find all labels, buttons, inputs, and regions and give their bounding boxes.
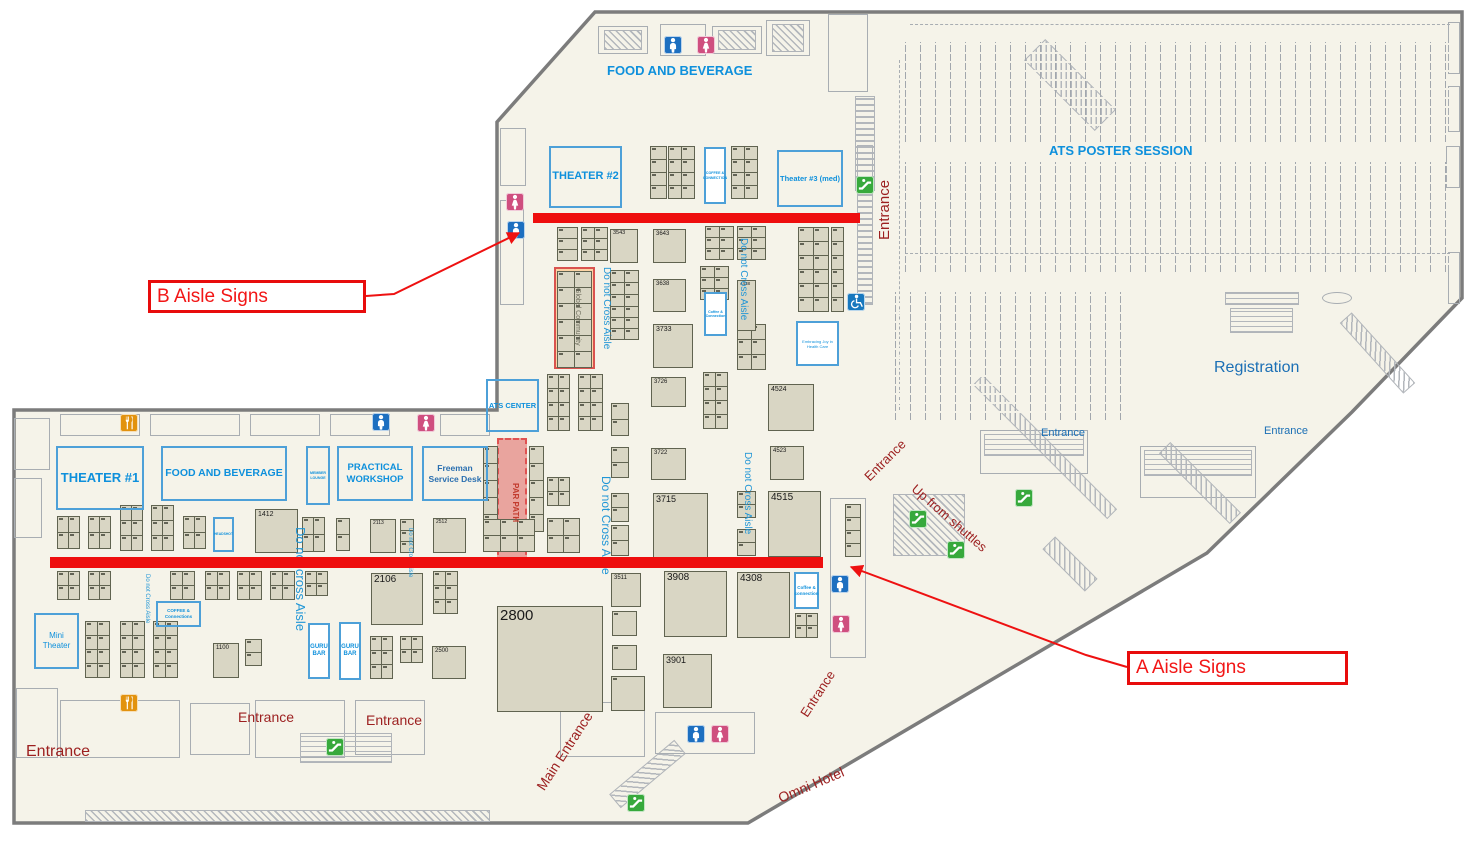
booth-cell bbox=[581, 249, 595, 261]
booth-cell bbox=[590, 388, 603, 403]
booth-number: 3715 bbox=[656, 495, 676, 504]
booth-cell bbox=[557, 319, 575, 336]
booth-cell bbox=[132, 635, 145, 650]
booth-cell bbox=[381, 664, 393, 679]
escalator-icon bbox=[1015, 489, 1033, 507]
booth-cell bbox=[798, 283, 814, 298]
booth-cell bbox=[681, 185, 695, 199]
zone-food-and-beverage: FOOD AND BEVERAGE bbox=[161, 446, 287, 501]
floor-structure bbox=[857, 145, 873, 305]
booth-cell bbox=[831, 269, 844, 284]
booth-4523: 4523 bbox=[770, 446, 804, 480]
booth-cell bbox=[831, 255, 844, 270]
food-court-icon bbox=[120, 694, 138, 712]
womens-restroom-icon bbox=[697, 36, 715, 54]
booth-cell bbox=[610, 328, 625, 340]
booth-cell bbox=[97, 635, 110, 650]
booth-cell bbox=[165, 649, 178, 664]
booth-cell bbox=[182, 585, 195, 600]
womens-restroom-icon bbox=[832, 615, 850, 633]
booth-cell bbox=[99, 516, 111, 533]
booth-cell bbox=[132, 663, 145, 678]
booth-cell bbox=[813, 269, 829, 284]
booth-cell bbox=[668, 172, 682, 186]
booth-cell bbox=[798, 227, 814, 242]
booth-cell bbox=[681, 172, 695, 186]
booth-number: 3543 bbox=[613, 231, 625, 237]
label-registration: Registration bbox=[1214, 360, 1299, 376]
booth-cell bbox=[624, 328, 639, 340]
booth-cell bbox=[132, 649, 145, 664]
booth-number: 2512 bbox=[436, 520, 447, 525]
booth-cell bbox=[558, 477, 570, 492]
booth-3733: 3733 bbox=[653, 324, 693, 368]
poster-board-rows bbox=[905, 162, 1450, 272]
booth-number: 4515 bbox=[771, 493, 793, 504]
floor-structure bbox=[500, 200, 524, 305]
booth-number: 3643 bbox=[656, 231, 669, 237]
booth-cell bbox=[751, 354, 766, 370]
booth-2106: 2106 bbox=[371, 573, 423, 625]
booth-cell bbox=[529, 463, 544, 481]
booth-cell bbox=[650, 172, 667, 186]
floor-structure bbox=[1322, 292, 1352, 304]
booth-cell bbox=[97, 649, 110, 664]
booth-cell bbox=[558, 416, 570, 431]
booth-cell bbox=[611, 676, 645, 711]
callout-leader-line bbox=[366, 233, 519, 296]
booth-cell bbox=[681, 159, 695, 173]
booth-3638: 3638 bbox=[653, 279, 686, 312]
label-entrance: Entrance bbox=[366, 713, 422, 727]
escalator-icon bbox=[909, 510, 927, 528]
zone-guru-bar: GURU BAR bbox=[339, 622, 361, 680]
booth-cell bbox=[744, 146, 758, 160]
booth-cell bbox=[831, 241, 844, 256]
booth-1412: 1412 bbox=[255, 509, 298, 553]
booth-cell bbox=[483, 519, 501, 536]
label-omni-hotel: Omni Hotel bbox=[776, 765, 846, 805]
booth-cell bbox=[737, 542, 756, 556]
floor-structure bbox=[440, 414, 490, 436]
booth-cell bbox=[68, 571, 80, 586]
booth-3643: 3643 bbox=[653, 229, 686, 263]
booth-number: 4523 bbox=[773, 448, 786, 454]
booth-3901: 3901 bbox=[663, 654, 712, 708]
booth-cell bbox=[806, 625, 818, 638]
label-entrance: Entrance bbox=[877, 180, 892, 240]
floor-structure bbox=[718, 30, 756, 50]
poster-board-rows bbox=[905, 42, 1450, 142]
booth-cell bbox=[557, 287, 575, 304]
zone-theater-3-med: Theater #3 (med) bbox=[777, 150, 843, 207]
booth-1100: 1100 bbox=[213, 643, 239, 678]
booth-cell bbox=[668, 159, 682, 173]
booth-cell bbox=[705, 248, 720, 260]
booth-cell bbox=[611, 540, 629, 556]
booth-cell bbox=[612, 611, 637, 636]
booth-cell bbox=[594, 249, 608, 261]
wheelchair-accessible-icon bbox=[847, 293, 865, 311]
booth-cell bbox=[529, 497, 544, 515]
booth-cell bbox=[529, 480, 544, 498]
booth-number: 3908 bbox=[667, 573, 689, 584]
booth-cell bbox=[611, 507, 629, 522]
floor-structure bbox=[604, 30, 642, 50]
booth-cell bbox=[445, 585, 458, 600]
label-global-community: Global Community bbox=[574, 288, 581, 346]
label-do-not-cross-aisle: Do not Cross Aisle bbox=[738, 238, 748, 320]
booth-cell bbox=[165, 663, 178, 678]
booth-cell bbox=[547, 535, 564, 553]
booth-number: 2113 bbox=[373, 521, 384, 526]
booth-cell bbox=[483, 535, 501, 552]
booth-cell bbox=[162, 520, 174, 536]
booth-cell bbox=[611, 419, 629, 436]
floor-structure bbox=[1042, 536, 1097, 591]
booth-cell bbox=[563, 535, 580, 553]
booth-cell bbox=[557, 335, 575, 352]
booth-cell bbox=[445, 599, 458, 614]
booth-cell bbox=[611, 462, 629, 478]
mens-restroom-icon bbox=[507, 221, 525, 239]
booth-cell bbox=[731, 159, 745, 173]
booth-cell bbox=[715, 372, 728, 387]
label-do-not-cross-aisle: Do not Cross Aisle bbox=[144, 574, 150, 623]
booth-cell bbox=[574, 271, 592, 288]
booth-cell bbox=[99, 532, 111, 549]
booth-cell bbox=[744, 172, 758, 186]
booth-cell bbox=[558, 388, 570, 403]
label-do-not-cross-aisle: Do not cross Aisle bbox=[294, 527, 307, 631]
floor-structure bbox=[85, 810, 490, 822]
booth-number: 3722 bbox=[654, 450, 667, 456]
booth-number: 2800 bbox=[500, 608, 533, 624]
booth-cell bbox=[813, 283, 829, 298]
zone-coffee-connection: Coffee & connection bbox=[794, 572, 819, 609]
booth-cell bbox=[563, 518, 580, 536]
booth-cell bbox=[574, 351, 592, 368]
booth-number: 1412 bbox=[258, 511, 274, 518]
booth-cell bbox=[611, 525, 629, 541]
zone-mini-theater: Mini Theater bbox=[34, 613, 79, 669]
booth-cell bbox=[831, 227, 844, 242]
booth-cell bbox=[715, 400, 728, 415]
booth-cell bbox=[249, 571, 262, 586]
booth-cell bbox=[316, 583, 328, 596]
label-par-path: PAR PATH bbox=[511, 483, 519, 522]
booth-cell bbox=[131, 535, 143, 551]
floor-structure bbox=[828, 14, 868, 92]
booth-4308: 4308 bbox=[737, 572, 790, 638]
booth-cell bbox=[731, 172, 745, 186]
booth-cell bbox=[381, 650, 393, 665]
booth-cell bbox=[744, 185, 758, 199]
booth-number: 4524 bbox=[771, 386, 787, 393]
womens-restroom-icon bbox=[711, 725, 729, 743]
booth-2800: 2800 bbox=[497, 606, 603, 712]
booth-cell bbox=[500, 535, 518, 552]
zone-headshot: HEADSHOT bbox=[213, 517, 234, 552]
booth-cell bbox=[845, 504, 861, 518]
booth-number: 3901 bbox=[666, 656, 686, 665]
booth-cell bbox=[558, 374, 570, 389]
booth-cell bbox=[445, 571, 458, 586]
booth-2500: 2500 bbox=[432, 646, 466, 679]
mens-restroom-icon bbox=[687, 725, 705, 743]
booth-cell bbox=[751, 339, 766, 355]
booth-cell bbox=[715, 414, 728, 429]
poster-board-rows bbox=[895, 292, 1135, 420]
booth-cell bbox=[845, 517, 861, 531]
booth-cell bbox=[831, 297, 844, 312]
booth-cell bbox=[611, 493, 629, 508]
booth-cell bbox=[590, 402, 603, 417]
mens-restroom-icon bbox=[372, 413, 390, 431]
callout-b-aisle-signs: B Aisle Signs bbox=[148, 280, 366, 313]
booth-cell bbox=[68, 516, 80, 533]
floor-structure bbox=[1230, 308, 1293, 333]
floor-structure bbox=[150, 414, 240, 436]
booth-number: 3726 bbox=[654, 379, 667, 385]
booth-cell bbox=[557, 271, 575, 288]
booth-cell bbox=[845, 543, 861, 557]
booth-cell bbox=[668, 185, 682, 199]
booth-number: 1100 bbox=[216, 645, 229, 651]
booth-cell bbox=[611, 447, 629, 463]
booth-3722: 3722 bbox=[651, 448, 686, 480]
booth-cell bbox=[831, 283, 844, 298]
booth-cell bbox=[737, 354, 752, 370]
booth-cell bbox=[798, 269, 814, 284]
escalator-icon bbox=[627, 794, 645, 812]
booth-cell bbox=[336, 518, 350, 535]
booth-cell bbox=[751, 248, 766, 260]
booth-cell bbox=[611, 403, 629, 420]
booth-cell bbox=[681, 146, 695, 160]
booth-2512: 2512 bbox=[433, 518, 466, 553]
booth-cell bbox=[731, 146, 745, 160]
label-entrance: Entrance bbox=[1264, 426, 1308, 437]
zone-practical-workshop: PRACTICAL WORKSHOP bbox=[337, 446, 413, 501]
booth-cell bbox=[798, 255, 814, 270]
booth-cell bbox=[557, 303, 575, 320]
booth-cell bbox=[99, 585, 111, 600]
escalator-icon bbox=[326, 738, 344, 756]
booth-cell bbox=[411, 649, 423, 663]
callout-a-aisle-signs: A Aisle Signs bbox=[1127, 651, 1348, 685]
booth-cell bbox=[744, 159, 758, 173]
booth-cell bbox=[813, 297, 829, 312]
booth-cell bbox=[517, 535, 535, 552]
mens-restroom-icon bbox=[831, 575, 849, 593]
booth-3908: 3908 bbox=[664, 571, 727, 637]
booth-cell bbox=[162, 535, 174, 551]
booth-cell bbox=[411, 636, 423, 650]
zone-embracing-joy-in-health-care: Embracing Joy in Health Care bbox=[796, 321, 839, 366]
womens-restroom-icon bbox=[417, 414, 435, 432]
booth-cell bbox=[731, 185, 745, 199]
booth-cell bbox=[650, 185, 667, 199]
booth-number: 3511 bbox=[614, 575, 627, 581]
booth-3726: 3726 bbox=[651, 377, 686, 407]
booth-number: 3638 bbox=[656, 281, 669, 287]
floor-structure bbox=[300, 733, 392, 763]
label-ats-poster-session: ATS POSTER SESSION bbox=[1049, 144, 1193, 157]
booth-cell bbox=[558, 491, 570, 506]
mens-restroom-icon bbox=[664, 36, 682, 54]
zone-guru-bar: GURU BAR bbox=[308, 623, 330, 679]
booth-cell bbox=[668, 146, 682, 160]
booth-cell bbox=[590, 416, 603, 431]
booth-number: 3733 bbox=[656, 326, 672, 333]
label-food-and-beverage: FOOD AND BEVERAGE bbox=[607, 64, 752, 77]
booth-cell bbox=[165, 635, 178, 650]
booth-cell bbox=[612, 645, 637, 670]
escalator-icon bbox=[947, 541, 965, 559]
booth-cell bbox=[217, 571, 230, 586]
booth-cell bbox=[650, 159, 667, 173]
booth-cell bbox=[313, 517, 325, 535]
booth-cell bbox=[182, 571, 195, 586]
floor-structure bbox=[14, 418, 50, 470]
booth-cell bbox=[813, 255, 829, 270]
booth-number: 2106 bbox=[374, 575, 396, 586]
label-entrance: Entrance bbox=[798, 668, 837, 719]
booth-number: 2500 bbox=[435, 648, 448, 654]
a-aisle-line bbox=[50, 557, 823, 568]
booth-cell bbox=[249, 585, 262, 600]
escalator-icon bbox=[856, 176, 874, 194]
booth-4515: 4515 bbox=[768, 491, 821, 557]
zone-member-lounge: MEMBER LOUNGE bbox=[306, 446, 330, 505]
label-entrance: Entrance bbox=[1041, 428, 1085, 439]
booth-cell bbox=[245, 639, 262, 653]
booth-2113: 2113 bbox=[370, 519, 396, 553]
booth-cell bbox=[529, 446, 544, 464]
booth-number: 4308 bbox=[740, 574, 762, 585]
booth-cell bbox=[99, 571, 111, 586]
booth-cell bbox=[194, 532, 206, 549]
booth-cell bbox=[798, 241, 814, 256]
label-entrance: Entrance bbox=[238, 710, 294, 724]
label-entrance: Entrance bbox=[862, 437, 908, 483]
booth-cell bbox=[313, 534, 325, 552]
zone-theater-1: THEATER #1 bbox=[56, 446, 144, 510]
booth-cell bbox=[381, 636, 393, 651]
booth-cell bbox=[245, 652, 262, 666]
booth-3511: 3511 bbox=[611, 573, 641, 607]
floor-structure bbox=[14, 478, 42, 538]
b-aisle-line bbox=[533, 213, 860, 223]
womens-restroom-icon bbox=[506, 193, 524, 211]
booth-cell bbox=[813, 241, 829, 256]
booth-cell bbox=[336, 534, 350, 551]
booth-cell bbox=[557, 249, 578, 261]
booth-cell bbox=[97, 621, 110, 636]
booth-4524: 4524 bbox=[768, 384, 814, 431]
booth-cell bbox=[97, 663, 110, 678]
zone-coffee-connection: Coffee & Connection bbox=[704, 292, 727, 336]
floor-structure bbox=[772, 24, 804, 52]
booth-cell bbox=[650, 146, 667, 160]
floor-structure bbox=[1225, 292, 1299, 305]
label-entrance: Entrance bbox=[26, 744, 90, 760]
booth-cell bbox=[590, 374, 603, 389]
booth-3543: 3543 bbox=[610, 229, 638, 263]
food-court-icon bbox=[120, 414, 138, 432]
zone-freeman-service-desk: Freeman Service Desk bbox=[422, 446, 488, 501]
label-do-not-cross-aisle: Do not Cross Aisle bbox=[407, 528, 413, 577]
label-do-not-cross-aisle: Do not Cross Aisle bbox=[742, 452, 752, 534]
booth-cell bbox=[131, 520, 143, 536]
booth-cell bbox=[68, 532, 80, 549]
booth-cell bbox=[737, 339, 752, 355]
booth-cell bbox=[715, 386, 728, 401]
label-do-not-cross-aisle: Do not Cross Aisle bbox=[601, 267, 611, 349]
booth-3715: 3715 bbox=[653, 493, 708, 558]
booth-cell bbox=[547, 518, 564, 536]
booth-cell bbox=[845, 530, 861, 544]
booth-cell bbox=[557, 351, 575, 368]
floor-structure bbox=[1340, 312, 1415, 393]
booth-cell bbox=[558, 402, 570, 417]
booth-cell bbox=[162, 505, 174, 521]
zone-coffee-connection: COFFEE & CONNECTION bbox=[704, 147, 726, 204]
floor-structure bbox=[655, 712, 755, 754]
booth-cell bbox=[217, 585, 230, 600]
booth-cell bbox=[813, 227, 829, 242]
booth-cell bbox=[194, 516, 206, 533]
floor-plan: 1412210628003511390843083901371545154524… bbox=[0, 0, 1477, 852]
booth-cell bbox=[719, 248, 734, 260]
zone-theater-2: THEATER #2 bbox=[549, 146, 622, 208]
floor-structure bbox=[250, 414, 320, 436]
booth-cell bbox=[68, 585, 80, 600]
floor-structure bbox=[910, 24, 1450, 25]
zone-coffee-connections: COFFEE & Connections bbox=[156, 601, 201, 627]
floor-structure bbox=[500, 128, 526, 186]
zone-ats-center: ATS CENTER bbox=[486, 379, 539, 432]
booth-cell bbox=[798, 297, 814, 312]
